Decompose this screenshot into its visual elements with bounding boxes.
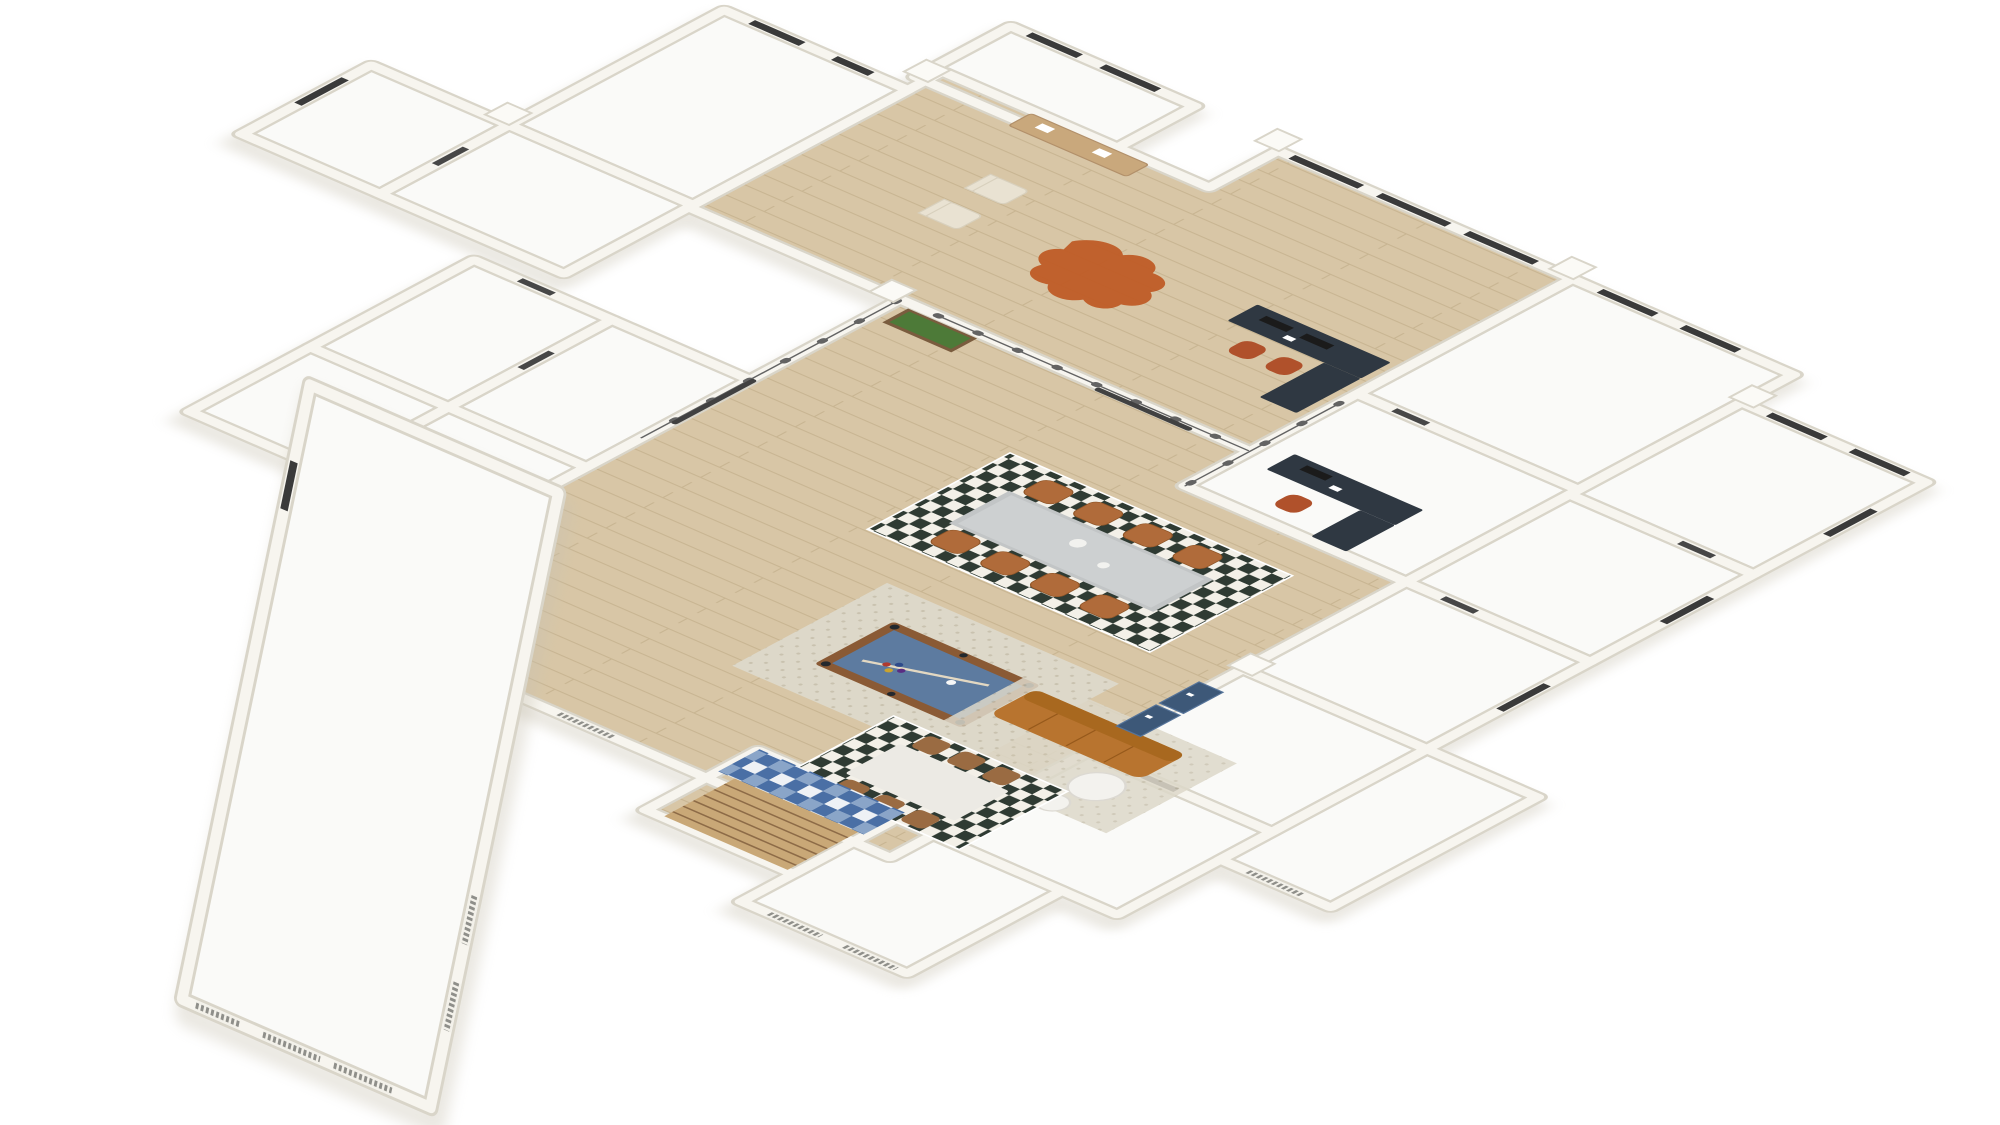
left-wing	[179, 385, 564, 1123]
chimney-column	[1255, 129, 1301, 151]
floorplan-canvas	[0, 0, 2000, 1125]
floorplan-stage	[0, 0, 2000, 1125]
